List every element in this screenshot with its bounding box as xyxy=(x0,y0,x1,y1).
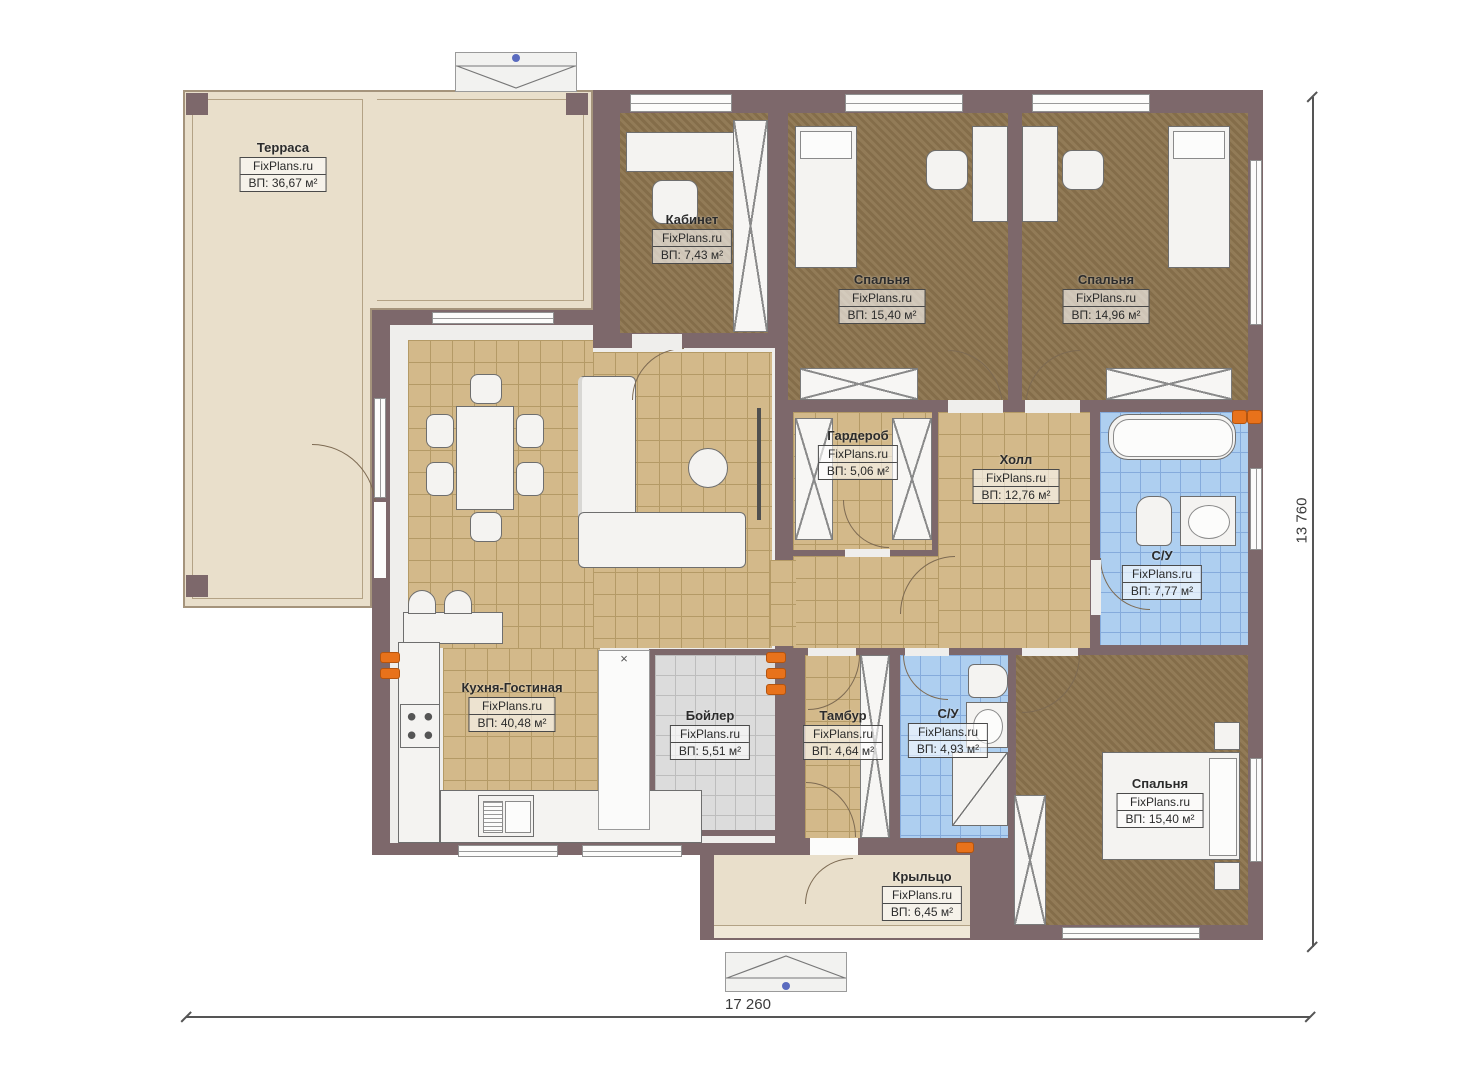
kitchen-terrace-window xyxy=(432,312,554,324)
room-label-bedroom-bottom: Спальня FixPlans.ru ВП: 15,40 м² xyxy=(1117,776,1204,828)
office-desk xyxy=(626,132,744,172)
stove-icon xyxy=(400,704,440,748)
bedroom3-door-gap xyxy=(1022,648,1078,656)
room-area: ВП: 5,51 м² xyxy=(671,742,749,759)
room-area: ВП: 15,40 м² xyxy=(1118,810,1203,827)
terrace-post-icon xyxy=(186,93,208,115)
room-name: С/У xyxy=(1122,548,1202,563)
room-label-vestibule: Тамбур FixPlans.ru ВП: 4,64 м² xyxy=(803,708,883,760)
room-name: Спальня xyxy=(1063,272,1150,287)
room-label-bathroom-main: С/У FixPlans.ru ВП: 7,77 м² xyxy=(1122,548,1202,600)
room-name: Спальня xyxy=(839,272,926,287)
room-area: ВП: 7,77 м² xyxy=(1123,582,1201,599)
room-watermark: FixPlans.ru xyxy=(909,724,987,740)
terrace-deck-line xyxy=(377,99,584,301)
bedroom3-bottom-window xyxy=(1062,927,1200,939)
room-label-hall: Холл FixPlans.ru ВП: 12,76 м² xyxy=(973,452,1060,504)
bedroom2-side-window xyxy=(1250,160,1262,325)
room-area: ВП: 36,67 м² xyxy=(241,174,326,191)
dining-chair xyxy=(426,414,454,448)
kitchen-left-window xyxy=(374,398,386,498)
room-watermark: FixPlans.ru xyxy=(671,726,749,742)
bedroom2-door-gap xyxy=(1025,400,1080,413)
shaft-box: × xyxy=(598,650,650,830)
dining-table xyxy=(456,406,514,510)
room-watermark: FixPlans.ru xyxy=(653,230,731,246)
room-name: Гардероб xyxy=(818,428,898,443)
room-watermark: FixPlans.ru xyxy=(1064,290,1149,306)
dining-chair xyxy=(516,414,544,448)
room-label-terrace: Терраса FixPlans.ru ВП: 36,67 м² xyxy=(240,140,327,192)
bedroom2-window xyxy=(1032,94,1150,112)
kitchen-window-1 xyxy=(458,845,558,857)
bathroom-main-window xyxy=(1250,468,1262,550)
gable-marker-bottom xyxy=(725,952,847,992)
terrace-floor-top xyxy=(370,90,593,310)
room-area: ВП: 7,43 м² xyxy=(653,246,731,263)
room-watermark: FixPlans.ru xyxy=(804,726,882,742)
gable-marker-top xyxy=(455,52,577,92)
dimension-line-right xyxy=(1312,97,1314,947)
room-name: С/У xyxy=(908,706,988,721)
bedroom1-door-gap xyxy=(948,400,1003,413)
bathtub-inner xyxy=(1113,419,1233,457)
floor-plan: × Терраса FixPlans.ru ВП: 36,67 м² Кабин… xyxy=(0,0,1474,1080)
bed-pillow xyxy=(800,131,852,159)
terrace-post-icon xyxy=(566,93,588,115)
radiator-icon xyxy=(956,842,974,853)
nightstand xyxy=(1214,722,1240,750)
room-label-office: Кабинет FixPlans.ru ВП: 7,43 м² xyxy=(652,212,732,264)
toilet-icon xyxy=(1136,496,1172,546)
sofa-horizontal xyxy=(578,512,746,568)
terrace-post-icon xyxy=(186,575,208,597)
room-name: Спальня xyxy=(1117,776,1204,791)
room-label-boiler: Бойлер FixPlans.ru ВП: 5,51 м² xyxy=(670,708,750,760)
bed-pillow xyxy=(1209,758,1237,856)
sink xyxy=(1180,496,1236,546)
wardrobe-cabinet xyxy=(1106,368,1232,400)
room-area: ВП: 4,93 м² xyxy=(909,740,987,757)
porch-step xyxy=(714,925,970,938)
room-name: Бойлер xyxy=(670,708,750,723)
kitchen-island xyxy=(403,612,503,644)
hall-floor xyxy=(938,412,1090,648)
tv-icon xyxy=(757,408,761,520)
dimension-line-bottom xyxy=(186,1016,1310,1018)
bar-stool xyxy=(444,590,472,614)
room-watermark: FixPlans.ru xyxy=(470,698,555,714)
desk xyxy=(972,126,1008,222)
room-label-porch: Крыльцо FixPlans.ru ВП: 6,45 м² xyxy=(882,869,962,921)
room-label-wardrobe: Гардероб FixPlans.ru ВП: 5,06 м² xyxy=(818,428,898,480)
office-wardrobe xyxy=(733,120,768,332)
vestibule-door-top-gap xyxy=(808,648,856,656)
dining-chair xyxy=(426,462,454,496)
nightstand xyxy=(1214,862,1240,890)
shower xyxy=(952,752,1008,826)
dining-chair xyxy=(470,374,502,404)
dimension-width-label: 17 260 xyxy=(688,996,808,1013)
room-label-bedroom-top-right: Спальня FixPlans.ru ВП: 14,96 м² xyxy=(1063,272,1150,324)
toilet-icon xyxy=(968,664,1008,698)
radiator-icon xyxy=(1247,410,1262,424)
sink-basin xyxy=(1188,505,1230,539)
bed xyxy=(795,126,857,268)
sink-basin xyxy=(505,801,531,833)
office-window xyxy=(630,94,732,112)
dining-chair xyxy=(516,462,544,496)
room-area: ВП: 12,76 м² xyxy=(974,486,1059,503)
room-watermark: FixPlans.ru xyxy=(241,158,326,174)
room-area: ВП: 40,48 м² xyxy=(470,714,555,731)
bed xyxy=(1168,126,1230,268)
room-label-bedroom-top-left: Спальня FixPlans.ru ВП: 15,40 м² xyxy=(839,272,926,324)
kitchen-hall-passage xyxy=(770,560,796,646)
room-watermark: FixPlans.ru xyxy=(840,290,925,306)
coffee-table xyxy=(688,448,728,488)
room-name: Кухня-Гостиная xyxy=(461,680,562,695)
dining-chair xyxy=(470,512,502,542)
bathroom-main-door-gap xyxy=(1091,560,1101,615)
room-name: Крыльцо xyxy=(882,869,962,884)
desk-chair xyxy=(1062,150,1104,190)
room-area: ВП: 15,40 м² xyxy=(840,306,925,323)
room-name: Терраса xyxy=(240,140,327,155)
room-area: ВП: 6,45 м² xyxy=(883,903,961,920)
room-area: ВП: 4,64 м² xyxy=(804,742,882,759)
kitchen-window-2 xyxy=(582,845,682,857)
room-name: Холл xyxy=(973,452,1060,467)
room-label-bathroom-small: С/У FixPlans.ru ВП: 4,93 м² xyxy=(908,706,988,758)
room-name: Кабинет xyxy=(652,212,732,227)
wardrobe-door-gap xyxy=(845,549,890,557)
shaft-mark-icon: × xyxy=(620,651,628,666)
dimension-height-label: 13 760 xyxy=(1294,471,1311,571)
bed-pillow xyxy=(1173,131,1225,159)
radiator-icon xyxy=(766,684,786,695)
bedroom1-window xyxy=(845,94,963,112)
desk xyxy=(1022,126,1058,222)
kitchen-sink xyxy=(478,795,534,837)
room-label-kitchen-living: Кухня-Гостиная FixPlans.ru ВП: 40,48 м² xyxy=(461,680,562,732)
bar-stool xyxy=(408,590,436,614)
room-area: ВП: 5,06 м² xyxy=(819,462,897,479)
room-name: Тамбур xyxy=(803,708,883,723)
terrace-door-gap xyxy=(374,502,386,578)
drain-board xyxy=(483,801,503,833)
wardrobe-cabinet xyxy=(1014,795,1046,925)
room-watermark: FixPlans.ru xyxy=(883,887,961,903)
radiator-icon xyxy=(766,668,786,679)
bathroom-small-door-gap xyxy=(905,648,949,656)
room-watermark: FixPlans.ru xyxy=(819,446,897,462)
wardrobe-cabinet xyxy=(800,368,918,400)
radiator-icon xyxy=(766,652,786,663)
vestibule-door-bottom-gap xyxy=(810,838,858,855)
office-door-gap xyxy=(632,334,682,350)
room-area: ВП: 14,96 м² xyxy=(1064,306,1149,323)
room-watermark: FixPlans.ru xyxy=(1118,794,1203,810)
room-watermark: FixPlans.ru xyxy=(1123,566,1201,582)
room-watermark: FixPlans.ru xyxy=(974,470,1059,486)
bathtub xyxy=(1108,414,1236,460)
radiator-icon xyxy=(1232,410,1247,424)
bedroom3-side-window xyxy=(1250,758,1262,862)
radiator-icon xyxy=(380,668,400,679)
desk-chair xyxy=(926,150,968,190)
radiator-icon xyxy=(380,652,400,663)
